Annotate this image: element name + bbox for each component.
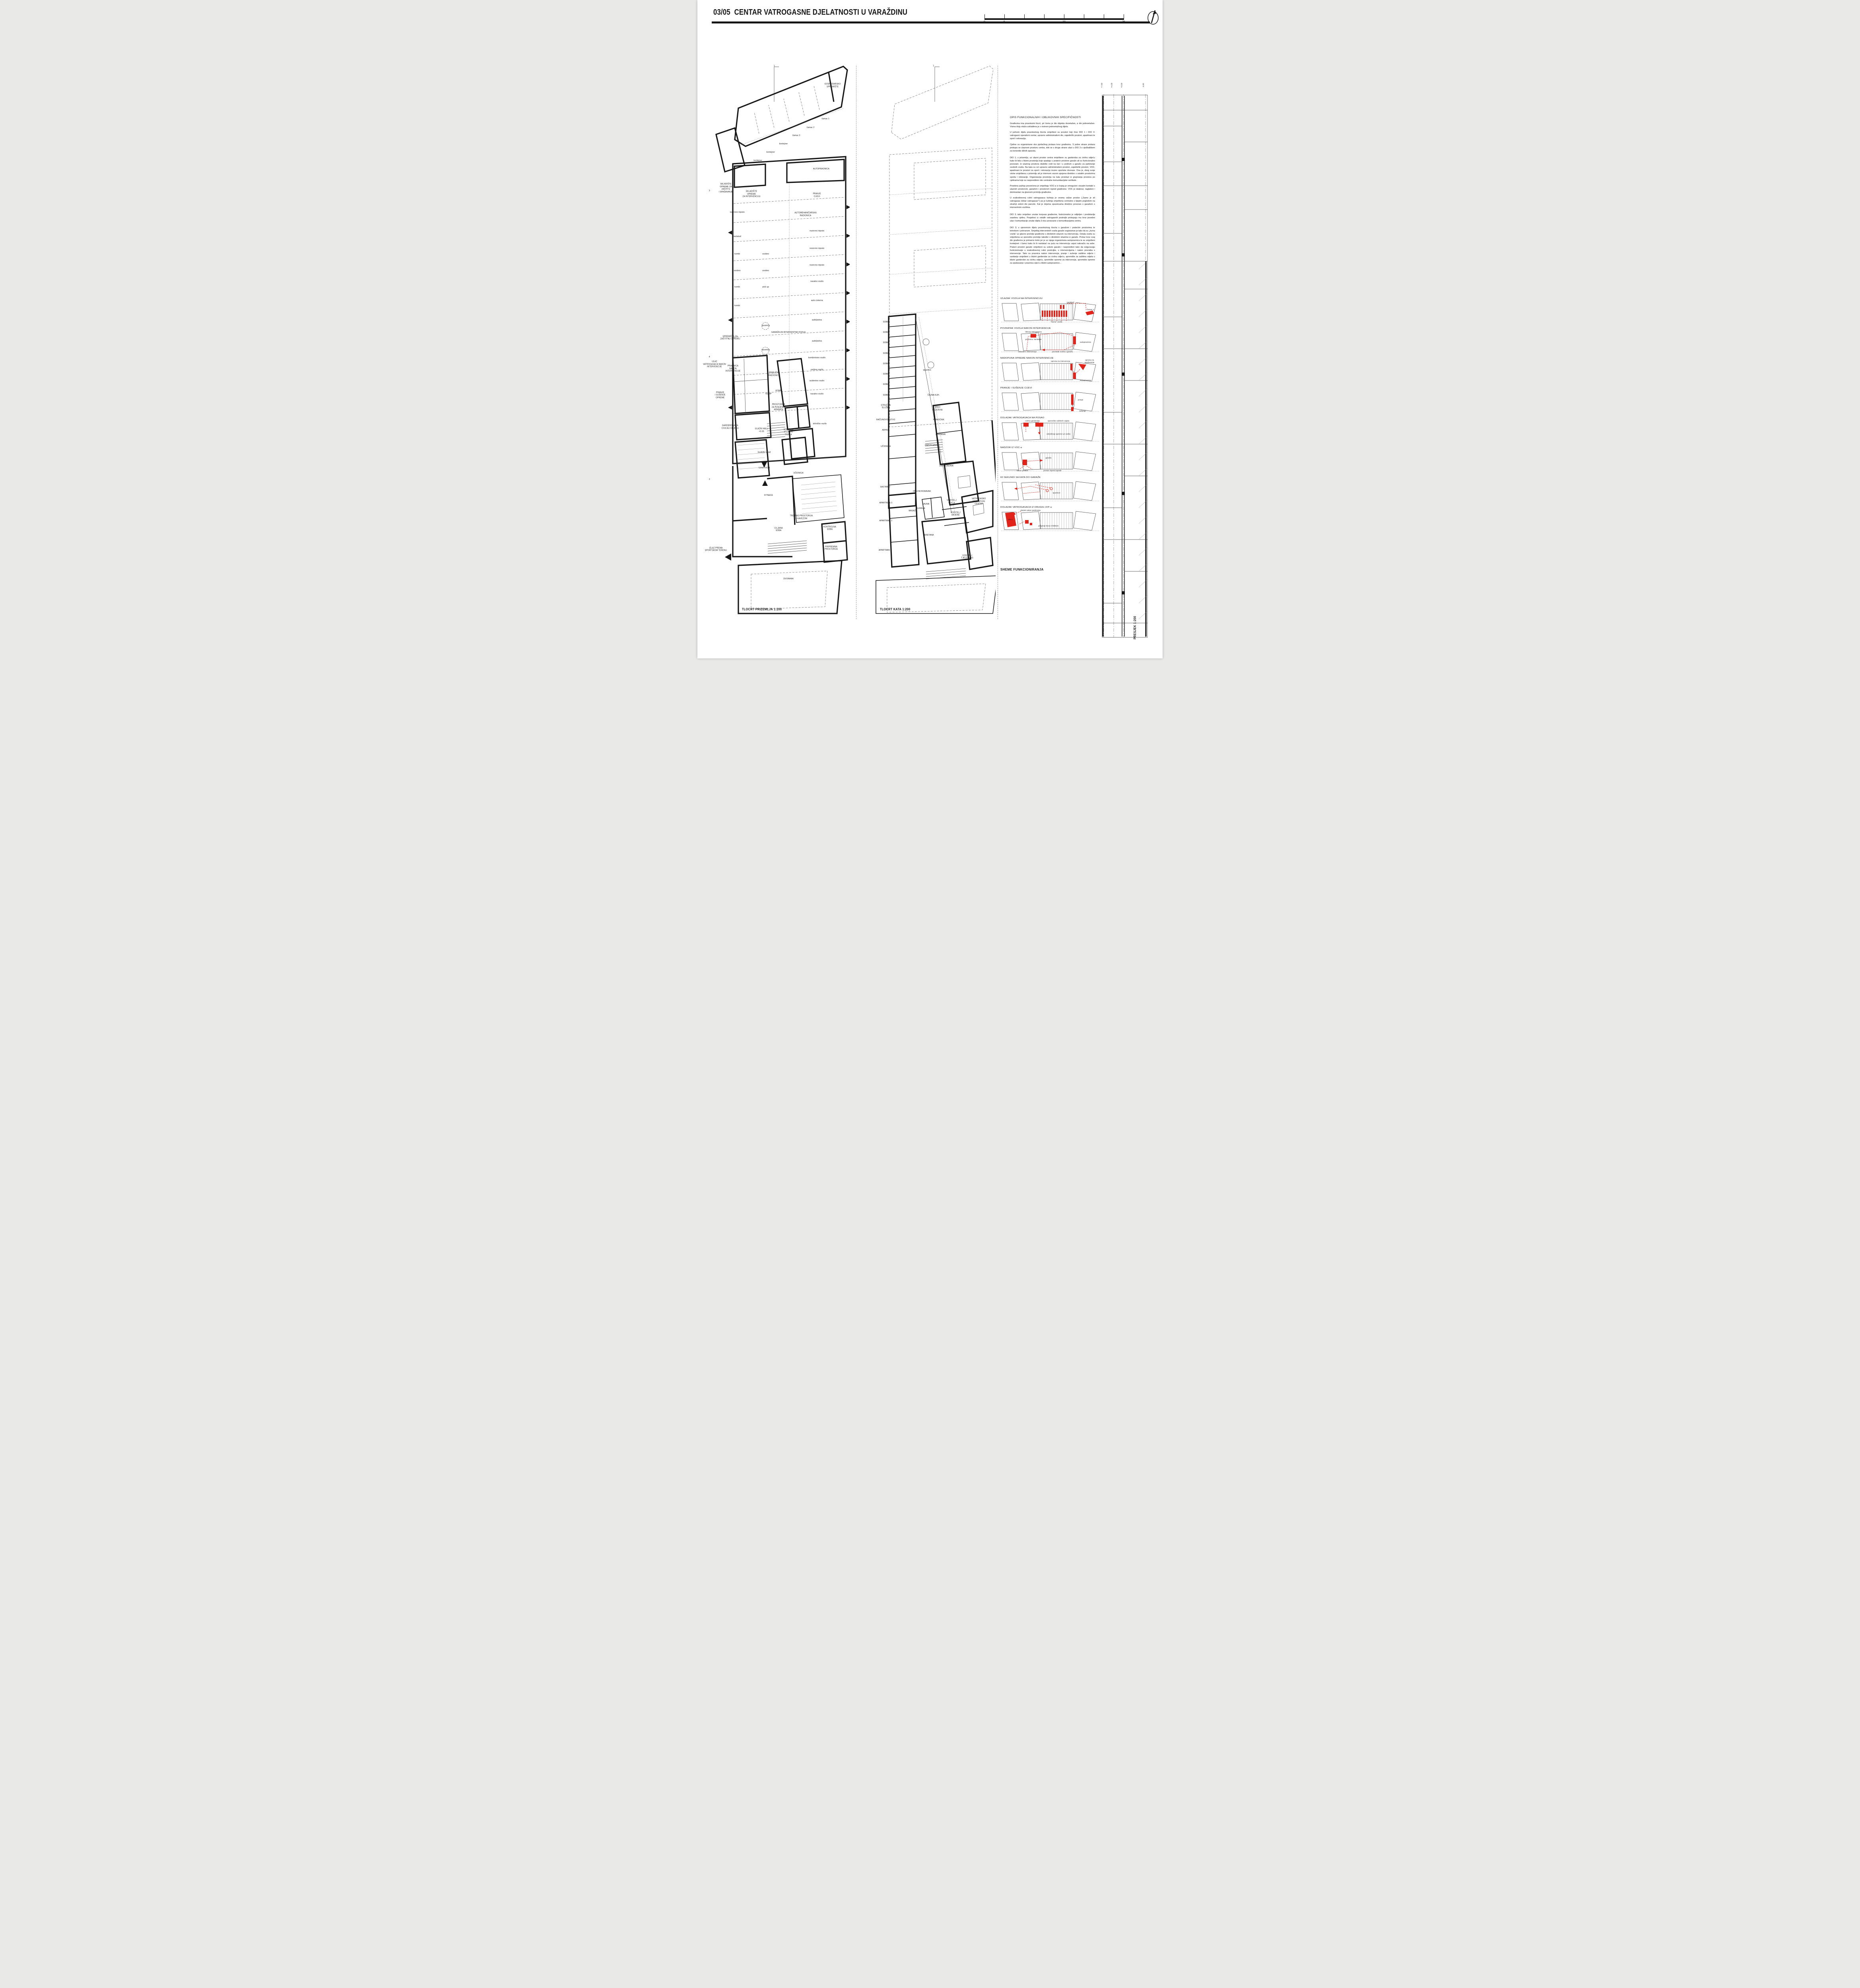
plan-label: SOBA: [883, 394, 889, 397]
plan-label: ULAZ VATROGASACA NAKON INTERVENCIJE: [703, 360, 726, 368]
plan-label: TRENING PROSTORIJA S KAVEZOM: [790, 515, 813, 520]
plan-label: rezervno mjesto: [810, 247, 824, 250]
scale-tick: [1084, 14, 1084, 18]
scale-tick: [984, 14, 985, 18]
plan-label: oprema za spašavanje: [1084, 359, 1095, 364]
first-floor-plan: SOBASOBASOBASOBASOBASOBASOBASOBAspusnice…: [866, 64, 996, 614]
plan-label: ulazak nakon parkiranja: [1020, 509, 1041, 512]
plan-label: spusnice: [1053, 492, 1060, 494]
floor-plan-caption: TLOCRT KATA 1:200: [880, 608, 911, 611]
plan-label: odnošenje opreme uz vozila: [1046, 433, 1070, 435]
plan-label: 4: [709, 356, 710, 359]
scheme-diagram: oprema za intervencijuoprema za spašavan…: [1000, 361, 1101, 382]
plan-label: ČAJNA KUH.: [928, 394, 940, 397]
plan-label: spusnice: [923, 369, 931, 372]
plan-label: čamac 1: [821, 117, 829, 120]
plan-label: 1: [774, 64, 775, 67]
plan-label: VODITELJ VOZNOG PARKA: [784, 428, 794, 436]
plan-label: auto cisterna: [811, 299, 823, 302]
description-paragraph: DIO 3, iako smješten unutar korpusa građ…: [1010, 213, 1095, 223]
plan-label: acidentno vozilo: [810, 380, 824, 382]
description-heading: OPIS FUNKCIONALNIH I OBLIKOVNIH SPECIFIČ…: [1010, 116, 1095, 119]
plan-label: URED REZERVNI: [932, 406, 943, 412]
plan-label: čamac 3: [792, 134, 800, 137]
plan-label: ZAPOSLENICI: [925, 444, 938, 447]
level-label: +7.60: [1101, 83, 1103, 87]
plan-label: 3: [709, 190, 710, 192]
plan-label: ZAMJENIK: [936, 433, 946, 436]
plan-label: SOBA: [883, 373, 889, 376]
scale-tick: [1004, 14, 1005, 18]
scheme-diagram: iskrcaj vatrogasacapraonica, sanitarijea…: [1000, 331, 1101, 353]
level-label: +4.30: [1111, 83, 1113, 87]
plan-label: spusnica: [761, 349, 770, 351]
plan-label: KOMP: [765, 393, 771, 396]
ground-floor-plan: GOSPODARSKO SPREMIŠTEčamac 1čamac 2čamac…: [707, 64, 850, 614]
plan-label: VODITELJ VOC-A: [947, 499, 957, 505]
plan-label: "žurna" vozila: [1051, 321, 1062, 323]
plan-label: KONTROLNA SOBA: [823, 526, 836, 531]
plan-label: rezervno mjesto: [730, 211, 745, 214]
plan-label: autoljestva: [812, 319, 822, 322]
plan-label: SOBA: [883, 363, 889, 365]
description-paragraph: DIO 3; u sjevernom dijelu pravokutnog tl…: [1010, 226, 1095, 265]
plan-label: STRUČNA SLUŽBA: [881, 404, 891, 409]
plan-label: GARDEROBA ZA CIVILNU ODJEĆU: [722, 425, 739, 430]
plan-label: kombi: [734, 286, 740, 289]
plan-label: FITNESS: [764, 494, 773, 497]
scale-bar: 0 5 20 35: [984, 12, 1124, 24]
plan-label: ARHIVA: [882, 429, 889, 432]
plan-label: rezervno mjesto: [810, 264, 824, 267]
plan-label: garaža: [1046, 457, 1052, 459]
plan-label: sušenje: [1079, 410, 1086, 412]
description-paragraph: Građevina ima pravokutni tlocrt, pri čem…: [1010, 122, 1095, 128]
scheme-dolazak-jvp: DOLAZAK VATROGASACA IZ DRUGIH JVP-a ulaz…: [1000, 506, 1101, 532]
plan-label: spremište zaštitnih odjela: [1048, 420, 1069, 422]
scheme-diagram: civilna garderobaspremište zaštitnih odj…: [1000, 420, 1101, 442]
plan-label: autoljestva: [812, 340, 822, 343]
plan-label: IZLAZ PREMA SPORTSKOM TERENU: [705, 547, 727, 552]
plan-label: SPREMIŠTE ZA ZAŠTITNU OPREMU: [720, 335, 740, 340]
level-label: +0.00: [1121, 83, 1123, 87]
scale-label: 35: [1122, 21, 1125, 23]
plan-label: GARAŽA ZA INTERVENTNA VOZILA: [771, 331, 806, 334]
plan-label: SAUNA: [922, 503, 930, 506]
section-caption: PRESJEK 1:200: [1133, 616, 1137, 639]
plan-label: PRIPREMNA PROSTORIJA: [825, 546, 838, 551]
scale-tick: [1044, 14, 1045, 18]
plan-label: 1: [933, 64, 934, 67]
scheme-title: 60 SEKUNDI SA KATA DO GARAŽE: [1000, 476, 1101, 479]
scale-label: 5: [1004, 21, 1005, 23]
plan-label: APARTMAN 2: [880, 519, 893, 522]
scheme-diagram: ulazak nakon parkiranjadio 3punjenje boc…: [1000, 510, 1101, 532]
scheme-60-sekundi: 60 SEKUNDI SA KATA DO GARAŽE spusnice: [1000, 476, 1101, 502]
plan-label: SKLADIŠTE OPREME ZA INTERVENCIJU: [742, 190, 760, 198]
plan-label: POMOĆNIK: [933, 419, 944, 421]
ground-plan-caption: TLOCRT PRIZEMLJA 1:200: [742, 608, 782, 611]
plan-label: kombi: [734, 253, 740, 256]
scheme-title: DOLAZAK VATROGASACA NA POSAO: [1000, 417, 1101, 419]
plan-label: TERETANA: [923, 534, 934, 536]
plan-label: pranje: [1078, 399, 1083, 401]
plan-label: UČIONICA: [881, 445, 891, 448]
plan-label: SOBA: [883, 352, 889, 355]
sheet-number: 03/05: [713, 8, 730, 17]
scheme-title: POVRATAK VOZILA NAKON INTERVENCIJE: [1000, 327, 1101, 330]
scheme-diagram: garažaulazni prostorprostor ispred zgrad…: [1000, 450, 1101, 472]
section-drawing: [1099, 94, 1151, 638]
plan-label: dio 3: [1008, 518, 1012, 521]
scheme-title: NADZOR IZ VOC-a: [1000, 447, 1101, 449]
plan-label: SOBA: [883, 383, 889, 386]
description-block: OPIS FUNKCIONALNIH I OBLIKOVNIH SPECIFIČ…: [1010, 116, 1095, 267]
plan-label: SOBA: [883, 320, 889, 323]
plan-label: APARTMAN 3: [880, 502, 893, 505]
scheme-diagram: pranjesušenje: [1000, 390, 1101, 412]
plan-label: KOMP: [775, 389, 781, 392]
plan-label: navalno vozilo: [810, 393, 823, 396]
plan-label: ULAZNI HALL +0.00: [755, 428, 768, 433]
level-label: -3.20: [1143, 83, 1145, 87]
site-boundary-line: [856, 66, 856, 619]
schemes-caption: SHEME FUNKCIONIRANJA: [1000, 568, 1044, 571]
plan-label: autopraonica: [1080, 379, 1091, 382]
plan-label: ZAPOVJEDNIK: [940, 465, 954, 468]
plan-label: kontejner: [767, 151, 775, 154]
sheet-title: 03/05 CENTAR VATROGASNE DJELATNOSTI U VA…: [713, 8, 907, 17]
scheme-pranje-cijevi: PRANJE I SUŠENJE CIJEVI pranjesušenje: [1000, 387, 1101, 412]
plan-label: MASAŽA: [909, 509, 917, 512]
plan-label: oprema za intervenciju: [1051, 360, 1070, 363]
plan-label: pick up: [762, 286, 769, 289]
plan-label: osobno: [762, 253, 769, 256]
scale-tick: [1104, 14, 1104, 18]
description-paragraph: U južnom dijelu pravokutnog tlocrta smje…: [1010, 131, 1095, 140]
page-title: CENTAR VATROGASNE DJELATNOSTI U VARAŽDIN…: [734, 8, 908, 17]
scale-tick: [1124, 14, 1124, 18]
plan-label: GLAVNI ULAZ: [758, 451, 771, 454]
plan-label: praonica, sanitarije: [1025, 338, 1042, 341]
plan-label: AUTOPRAONICA: [813, 167, 829, 170]
north-compass-icon: [1145, 9, 1161, 26]
section-linework: [1099, 94, 1151, 638]
scheme-title: IZLAZAK VOZILA NA INTERVENCIJU: [1000, 297, 1101, 300]
plan-label: VODITELJ SMJENE: [951, 511, 961, 516]
plan-label: VODITELJ TJELESNOG: [961, 554, 973, 559]
plan-label: spusnica: [761, 324, 770, 327]
plan-label: čamac 1: [1087, 309, 1094, 311]
plan-label: povratak vozila u garažu: [1052, 351, 1073, 353]
plan-label: SOBA: [883, 342, 889, 344]
scheme-nadzor-voc: NADZOR IZ VOC-a garažaulazni prostorpros…: [1000, 447, 1101, 472]
plan-label: PRANJE I SUŠENJE OPREME: [715, 391, 726, 399]
plan-label: DNEVNI BORAVAK: [913, 490, 931, 493]
plan-label: kontejner: [753, 159, 762, 162]
function-schemes: IZLAZAK VOZILA NA INTERVENCIJU navlakačč…: [1000, 297, 1101, 536]
scheme-title: DOLAZAK VATROGASACA IZ DRUGIH JVP-a: [1000, 506, 1101, 509]
plan-label: iskrcaj vatrogasaca: [1025, 331, 1042, 333]
description-paragraph: Cjeline su organizirane oko pješačkog pr…: [1010, 143, 1095, 153]
description-paragraph: U svakodnevnoj rutini vatrogasaca kuhinj…: [1010, 196, 1095, 209]
scale-bar-line: [984, 18, 1124, 20]
plan-label: rezervno mjesto: [810, 230, 824, 233]
plan-label: ULAZ DIO 3: [759, 466, 770, 469]
description-paragraph: Posebna pažnja posvećena je smještaju VO…: [1010, 184, 1095, 194]
site-boundary-line: [998, 66, 998, 619]
plan-label: 2: [709, 478, 710, 481]
plan-label: SASTANCI: [880, 486, 890, 489]
plan-label: kontejner: [779, 143, 788, 146]
plan-label: AUTOMEHANIČARSKA RADIONICA: [794, 212, 816, 217]
plan-label: kombinirano vozilo: [808, 356, 825, 359]
plan-label: DVORANA: [783, 578, 793, 580]
presentation-board: 03/05 CENTAR VATROGASNE DJELATNOSTI U VA…: [697, 0, 1163, 658]
plan-label: kombi: [734, 305, 740, 307]
plan-label: prostor ispred zgrade: [1043, 470, 1062, 472]
plan-label: APARTMAN 1: [879, 549, 892, 552]
scale-label: 0: [984, 21, 985, 23]
plan-label: osobno vozilo: [811, 369, 823, 371]
scheme-povratak-vozila: POVRATAK VOZILA NAKON INTERVENCIJE iskrc…: [1000, 327, 1101, 353]
plan-label: osobno: [762, 270, 769, 272]
plan-label: dolazak s intervencije: [1018, 351, 1037, 353]
plan-label: UČIONICA: [793, 472, 803, 475]
scheme-diagram: navlakaččamac 1"žurna" vozila: [1000, 301, 1101, 323]
plan-label: navalno vozilo: [810, 280, 823, 283]
plan-label: ulazni prostor: [1017, 470, 1028, 472]
scheme-izlazak-vozila: IZLAZAK VOZILA NA INTERVENCIJU navlakačč…: [1000, 297, 1101, 323]
scale-tick: [1064, 14, 1064, 18]
description-paragraph: DIO 1; u prizemlju, uz ulazni prostor ce…: [1010, 156, 1095, 182]
plan-label: PRANJE CIJEVI: [813, 193, 821, 198]
plan-label: autopraonica: [1080, 341, 1091, 344]
plan-label: PROSTORIJA ZA PUNJENJE APARATA: [772, 403, 785, 411]
plan-label: navlakač: [733, 235, 742, 238]
plan-label: PRIRUČNA RADIONICA: [769, 372, 780, 377]
plan-label: čamac 2: [807, 126, 815, 129]
plan-label: osobno: [734, 270, 741, 272]
scale-label: 20: [1062, 21, 1066, 23]
scheme-diagram: spusnice: [1000, 480, 1101, 502]
plan-label: GOSPODARSKO SPREMIŠTE: [825, 83, 841, 88]
first-floor-plan-drawing: [866, 64, 996, 614]
plan-label: tehničko vozilo: [813, 423, 827, 425]
plan-label: PRAONICA NAKON INTERVENCIJE: [726, 365, 740, 373]
scheme-dolazak-na-posao: DOLAZAK VATROGASACA NA POSAO civilna gar…: [1000, 417, 1101, 442]
plan-label: punjenje boca s kisikom: [1038, 525, 1058, 527]
plan-label: VATROGASNO OPERATIVNI CENTAR: [971, 497, 987, 505]
scheme-title: PRANJE I SUŠENJE CIJEVI: [1000, 387, 1101, 389]
plan-label: KUHINJA: [916, 507, 925, 510]
plan-label: RAČUNOVODSTVO: [876, 419, 895, 421]
scheme-nadopuna-opreme: NADOPUNA OPREME NAKON INTERVENCIJE oprem…: [1000, 357, 1101, 382]
plan-label: SOBA: [883, 331, 889, 334]
plan-label: SKLADIŠTE OPREME ZA ZAŠTITU I SPAŠAVANJE: [719, 183, 733, 193]
plan-label: navlakač: [1067, 301, 1074, 304]
plan-label: CILJANA SOBA: [774, 527, 782, 532]
plan-label: civilna garderoba: [1025, 420, 1040, 422]
scale-tick: [1024, 14, 1025, 18]
